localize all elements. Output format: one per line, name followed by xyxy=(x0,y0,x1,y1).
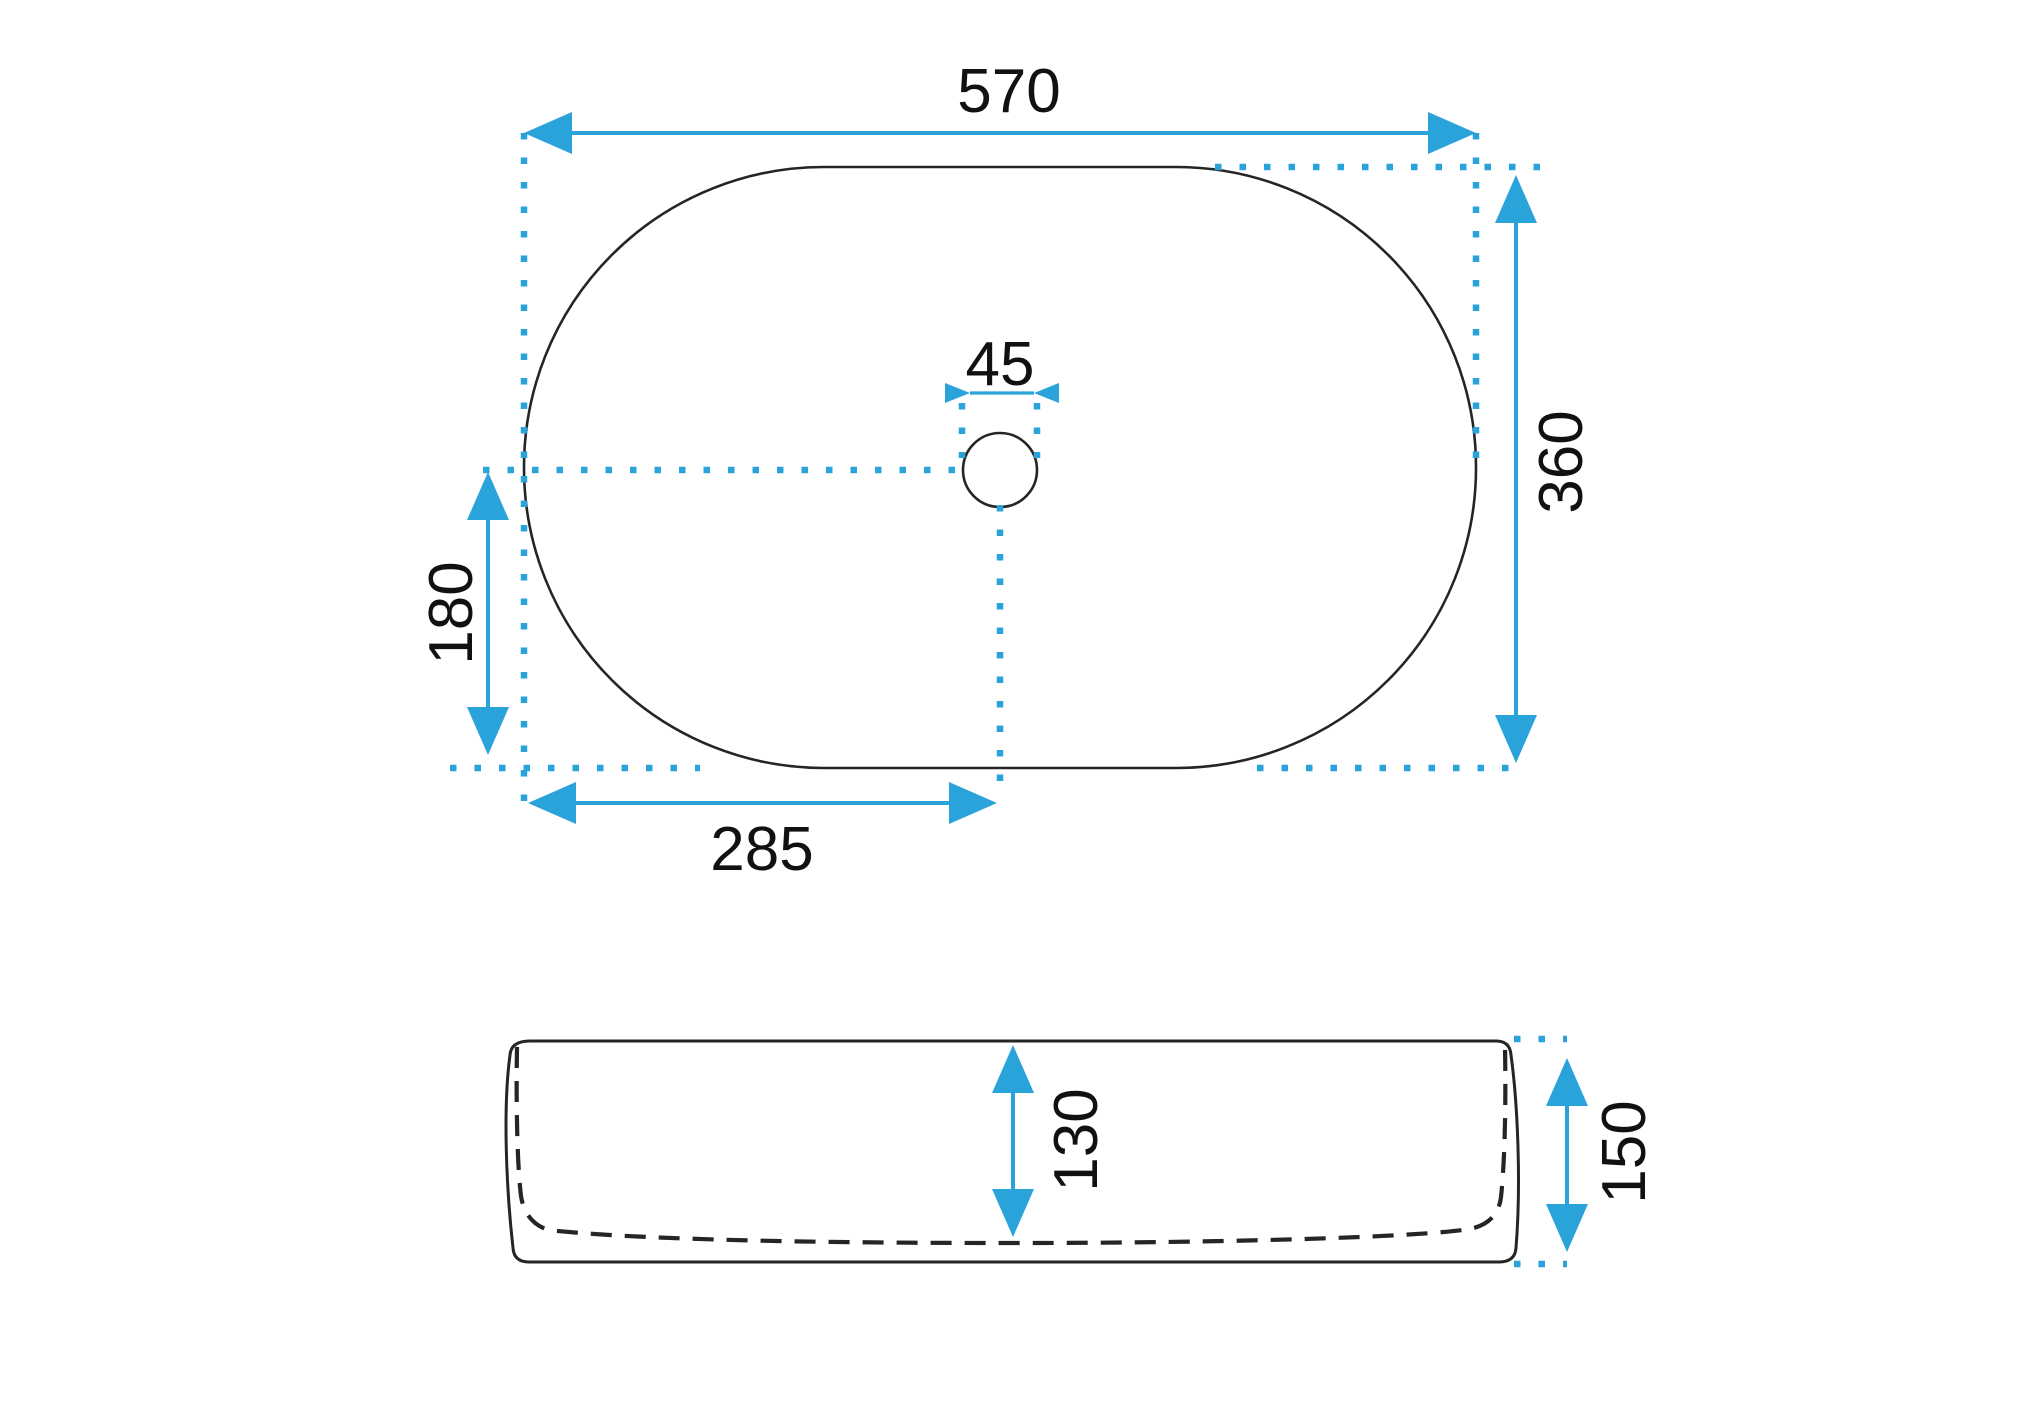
dim-label-inner-depth: 130 xyxy=(1042,1088,1111,1191)
drain-hole xyxy=(963,433,1037,507)
arrow-left-icon xyxy=(528,782,576,824)
arrow-inward-left-icon xyxy=(1034,383,1059,403)
arrow-down-icon xyxy=(1495,715,1537,763)
arrow-right-icon xyxy=(1428,112,1476,154)
dimension-inner-depth: 130 xyxy=(992,1045,1111,1237)
dim-label-drain-offset-horizontal: 285 xyxy=(710,815,813,884)
top-view: 570 360 45 180 xyxy=(417,57,1596,884)
dimension-overall-depth: 360 xyxy=(1495,175,1596,763)
dimension-drain-offset-vertical: 180 xyxy=(417,472,509,755)
arrow-up-icon xyxy=(1546,1058,1588,1106)
dim-label-drain-hole: 45 xyxy=(966,330,1035,399)
arrow-down-icon xyxy=(1546,1204,1588,1252)
arrow-right-icon xyxy=(949,782,997,824)
dimension-overall-width: 570 xyxy=(524,57,1476,154)
dimension-drain-hole: 45 xyxy=(945,330,1059,403)
arrow-down-icon xyxy=(467,707,509,755)
washbasin-technical-drawing: 570 360 45 180 xyxy=(0,0,2032,1397)
side-view: 130 150 xyxy=(506,1039,1659,1264)
dim-label-overall-depth: 360 xyxy=(1527,410,1596,513)
arrow-up-icon xyxy=(992,1045,1034,1093)
dim-label-drain-offset-vertical: 180 xyxy=(417,561,486,664)
arrow-down-icon xyxy=(992,1189,1034,1237)
arrow-up-icon xyxy=(1495,175,1537,223)
dimension-overall-height: 150 xyxy=(1546,1058,1659,1252)
dimension-drain-offset-horizontal: 285 xyxy=(528,782,997,884)
dim-label-overall-height: 150 xyxy=(1590,1100,1659,1203)
arrow-left-icon xyxy=(524,112,572,154)
dimension-drawing: 570 360 45 180 xyxy=(0,0,2032,1397)
arrow-up-icon xyxy=(467,472,509,520)
dim-label-overall-width: 570 xyxy=(957,57,1060,126)
